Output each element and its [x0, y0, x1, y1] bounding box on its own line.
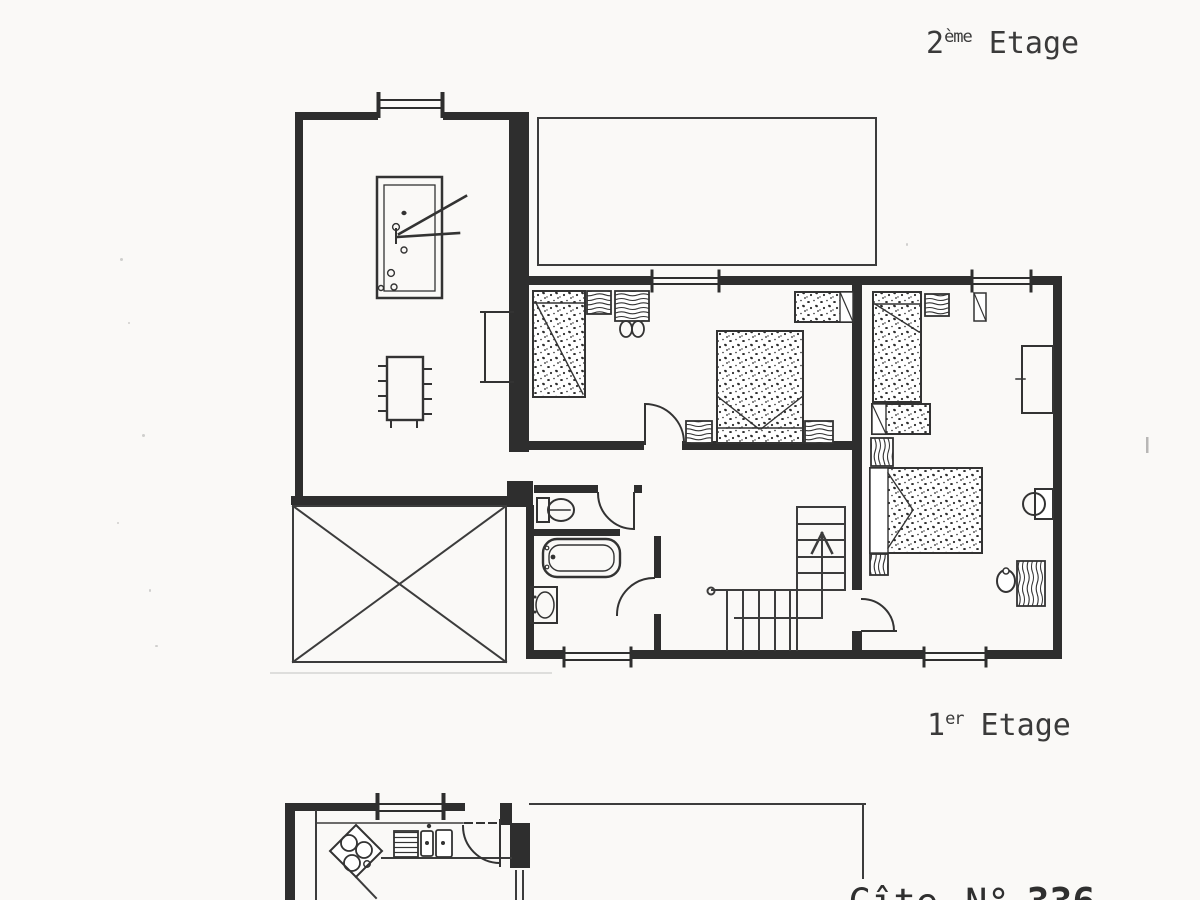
scan-speck — [155, 645, 158, 647]
wall-right-upper — [509, 112, 529, 452]
kitchen-stove — [330, 825, 382, 877]
up-arrow — [735, 533, 832, 618]
wall-closet — [1016, 346, 1053, 413]
floor2-number: 2 — [926, 26, 944, 61]
wall-top-a — [295, 112, 378, 120]
wall-top-b — [443, 112, 517, 120]
gite-word: Gîte — [849, 881, 938, 900]
wall-top-b — [444, 803, 465, 811]
nightstand — [587, 291, 611, 314]
floor2-suffix: ème — [944, 27, 972, 47]
wall-wc-top-b — [634, 485, 642, 493]
window-top-middle — [652, 271, 719, 291]
roof-outline — [530, 804, 865, 878]
scan-speck — [906, 243, 908, 246]
draining-board — [394, 831, 418, 857]
desk-and-chair — [997, 561, 1045, 606]
middle-bedroom — [533, 291, 853, 443]
scan-speck — [142, 434, 145, 437]
single-bed-horizontal — [872, 404, 930, 434]
floor1-suffix: er — [945, 709, 963, 729]
wc-door — [598, 493, 634, 529]
billiard-cue — [399, 196, 466, 234]
kitchen-window — [377, 795, 444, 818]
wall-bath-east-upper — [654, 536, 661, 578]
billiard-ball — [401, 211, 406, 215]
window-bottom-bedroom — [924, 648, 986, 666]
lower-wall-lines — [516, 871, 523, 900]
chair — [620, 321, 644, 337]
wall-divider-upper — [852, 276, 862, 590]
wardrobe — [871, 438, 893, 466]
entry-door — [463, 820, 500, 866]
billiard-table — [377, 177, 466, 298]
single-bed-left — [533, 291, 585, 397]
billiard-ball — [388, 270, 395, 277]
wall-wc-divider — [534, 529, 620, 536]
scan-speck — [117, 522, 119, 524]
single-bed-top — [873, 292, 921, 402]
floorplan-drawing — [0, 0, 1200, 900]
nightstand — [686, 421, 712, 443]
desk — [1017, 561, 1045, 606]
window-bottom-bath — [564, 648, 631, 666]
staircase — [708, 507, 846, 650]
wall-left — [285, 803, 295, 900]
double-bed — [870, 468, 982, 553]
wall-pier-top — [500, 803, 512, 825]
floor2-word: Etage — [989, 26, 1079, 61]
wall-pier-dark — [510, 823, 530, 868]
right-bedroom-door — [862, 599, 896, 631]
wall-bath-west — [526, 505, 534, 659]
right-bedroom — [870, 292, 1053, 606]
wall-bedroom-south-a — [529, 441, 644, 450]
bathtub — [543, 539, 620, 577]
floor1-label: 1erEtage — [927, 708, 1071, 743]
gite-number-label: GîteN°336 — [849, 880, 1095, 900]
toilet — [537, 498, 574, 522]
window-top-right — [972, 271, 1031, 291]
washbasin — [531, 587, 557, 623]
game-room-walls — [291, 112, 533, 507]
scanned-floorplan-page: 2èmeEtage 1erEtage GîteN°336 — [0, 0, 1200, 900]
first-floor-plan — [285, 795, 865, 900]
second-floor-plan — [291, 94, 1062, 666]
floor2-label: 2èmeEtage — [926, 26, 1079, 61]
billiard-ball — [379, 286, 384, 291]
kitchen-sink — [394, 824, 452, 857]
wall-left — [295, 112, 303, 506]
scan-speck — [128, 322, 130, 324]
crossed-terrace — [293, 506, 506, 662]
double-bed — [717, 331, 803, 443]
desk — [615, 291, 649, 321]
bath-door — [617, 578, 654, 615]
game-room-window — [378, 94, 443, 116]
wall-divider-lower — [852, 631, 862, 659]
gite-number: 336 — [1027, 880, 1096, 900]
wall-bottom — [291, 496, 513, 505]
dining-table — [379, 357, 431, 427]
scan-artifacts — [270, 437, 1149, 673]
scan-speck — [120, 258, 123, 261]
billiard-ball — [401, 247, 407, 253]
gite-number-sign: N° — [965, 881, 1010, 900]
nightstand — [925, 294, 949, 316]
wall-top-a — [285, 803, 377, 811]
floor1-number: 1 — [927, 708, 945, 743]
floor1-word: Etage — [981, 708, 1071, 743]
wall-wc-top-a — [534, 485, 598, 493]
small-bed-top — [795, 292, 853, 322]
scan-speck — [149, 589, 151, 592]
nightstand — [870, 554, 888, 575]
nightstand — [805, 421, 833, 443]
wall-closet — [481, 312, 513, 382]
billiard-cue — [397, 233, 459, 237]
wall-bath-east-lower — [654, 614, 661, 659]
middle-bedroom-door — [645, 404, 684, 444]
dresser — [974, 293, 986, 321]
roof-outline — [538, 118, 876, 265]
billiard-ball — [391, 284, 397, 290]
wall-right-outer — [1053, 276, 1062, 659]
washbasin — [1023, 489, 1053, 519]
